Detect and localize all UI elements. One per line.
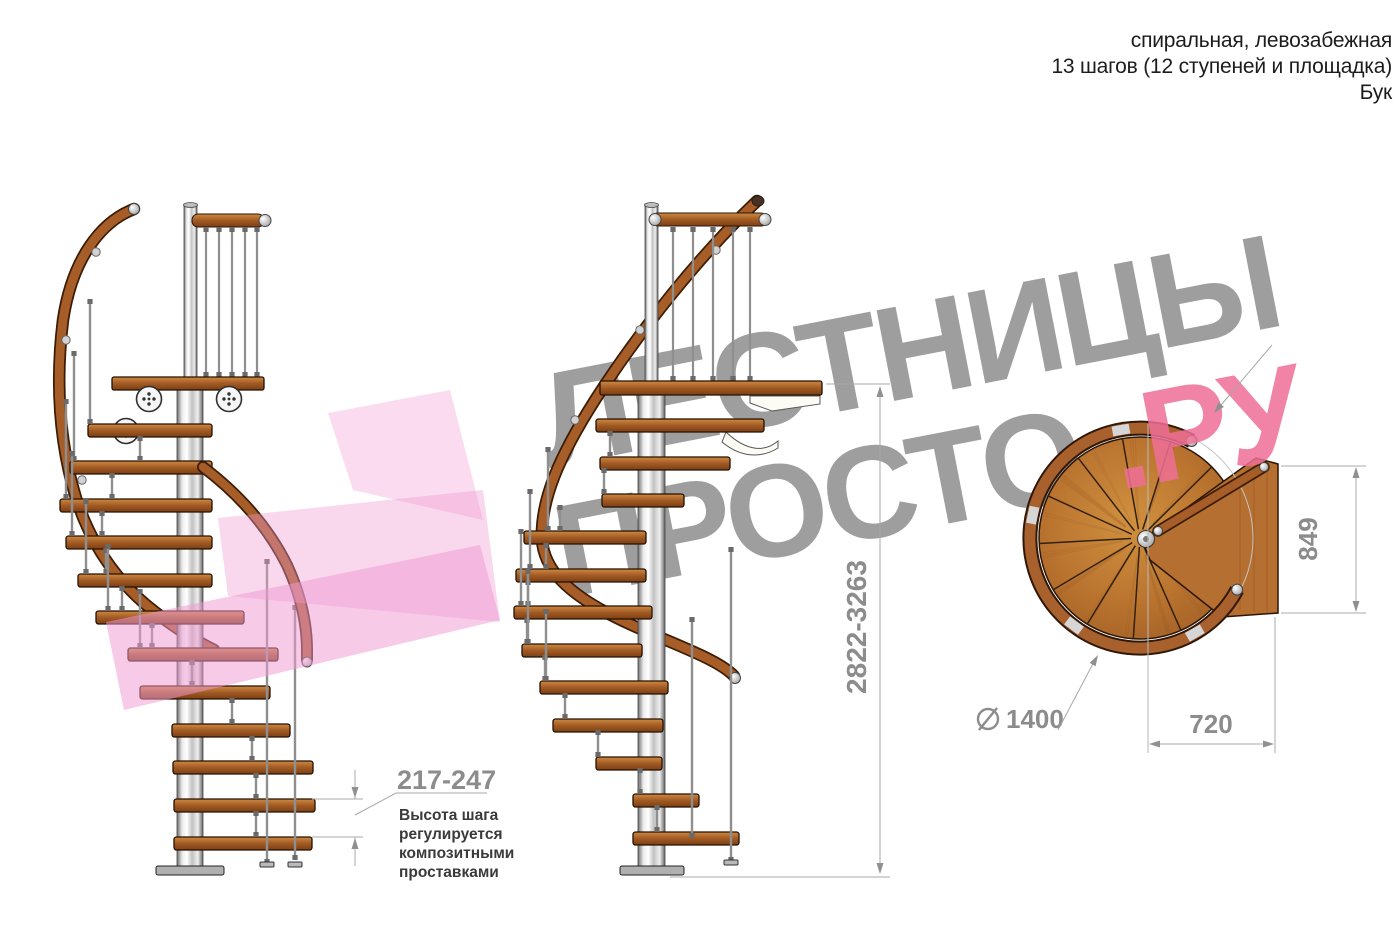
baluster-joint: [670, 376, 675, 381]
arrowhead-up: [1353, 467, 1360, 478]
step: [66, 536, 212, 549]
baluster-joint: [83, 569, 88, 574]
baluster-joint: [99, 511, 104, 516]
rail-end-ball: [649, 214, 661, 226]
step-note-line: регулируется: [399, 826, 502, 843]
baluster-joint: [203, 372, 208, 377]
baluster-joint: [595, 730, 600, 735]
baluster-joint: [607, 431, 612, 436]
baluster-joint: [71, 351, 76, 356]
arrowhead-down: [352, 787, 359, 798]
title-type: спиральная, левозабежная: [1131, 29, 1392, 52]
baluster-joint: [69, 451, 74, 456]
pole-top-cap: [184, 203, 198, 208]
baluster-joint: [249, 756, 254, 761]
total-height-dimension: 2822-3263: [841, 560, 872, 694]
platform-balusters: [203, 227, 259, 377]
handrail-end-cap: [129, 204, 140, 215]
baluster-joint: [105, 544, 110, 549]
baluster-joint: [545, 447, 550, 452]
step: [553, 719, 663, 732]
step: [633, 832, 739, 845]
arrowhead-down: [1353, 601, 1360, 612]
baluster-joint: [747, 376, 752, 381]
baluster-joint: [527, 489, 532, 494]
baluster-joint: [654, 827, 659, 832]
baluster-joint: [525, 569, 530, 574]
disk-hole: [222, 397, 225, 400]
ring-end-cap: [1232, 584, 1243, 595]
baluster-joint: [99, 531, 104, 536]
handrail-joint: [62, 336, 70, 344]
baluster-joint: [83, 499, 88, 504]
step: [60, 499, 212, 512]
baluster-joint: [730, 227, 735, 232]
disk-center: [228, 398, 231, 401]
baluster-joint: [292, 855, 297, 860]
baluster-joint: [543, 609, 548, 614]
step: [172, 724, 290, 737]
baluster-joint: [607, 452, 612, 457]
pole-base-plate: [620, 866, 684, 875]
disk-hole: [227, 392, 230, 395]
baluster-joint: [710, 376, 715, 381]
step: [540, 681, 668, 694]
baluster-joint: [229, 698, 234, 703]
handrail-top-cap: [752, 196, 764, 206]
step: [633, 794, 699, 807]
baluster-joint: [63, 399, 68, 404]
baluster-joint: [119, 606, 124, 611]
handrail-joint: [636, 326, 644, 334]
step: [78, 574, 212, 587]
platform-board: [600, 381, 822, 395]
platform-depth-dimension: 720: [1189, 709, 1232, 739]
baluster-joint: [109, 494, 114, 499]
baluster-joint: [545, 526, 550, 531]
baluster-joint: [203, 227, 208, 232]
baluster-joint: [242, 372, 247, 377]
baluster-joint: [518, 529, 523, 534]
disk-hole: [147, 402, 150, 405]
center-pole-upper: [645, 204, 658, 389]
baluster-joint: [229, 227, 234, 232]
baluster-joint: [63, 494, 68, 499]
staircase-technical-drawing: ЛЕСТНИЦЫ ПРОСТО: [0, 0, 1400, 929]
baluster-foot: [288, 862, 302, 867]
disk-hole: [147, 392, 150, 395]
baluster-joint: [253, 832, 258, 837]
disk-hole: [232, 397, 235, 400]
baluster-joint: [249, 736, 254, 741]
baluster-joint: [242, 227, 247, 232]
baluster-joint: [670, 227, 675, 232]
step: [88, 424, 212, 437]
baluster-joint: [87, 419, 92, 424]
step: [596, 419, 764, 432]
arrowhead: [1090, 655, 1098, 666]
baluster-joint: [216, 227, 221, 232]
step: [522, 644, 642, 657]
center-pole-upper: [184, 204, 197, 404]
handrail-joint: [78, 476, 86, 484]
baluster-joint: [710, 227, 715, 232]
step: [596, 757, 662, 770]
step-note-line: Высота шага: [399, 807, 499, 824]
pink-arrow-watermark: [106, 390, 500, 710]
baluster-joint: [689, 617, 694, 622]
step: [174, 837, 312, 850]
title-block: спиральная, левозабежная 13 шагов (12 ст…: [1051, 29, 1393, 104]
baluster-joint: [87, 299, 92, 304]
step: [173, 761, 313, 774]
step-note-line: композитными: [399, 845, 514, 862]
baluster-joint: [562, 693, 567, 698]
baluster-joint: [543, 676, 548, 681]
baluster-joint: [525, 639, 530, 644]
handrail-joint: [571, 416, 579, 424]
step-note-line: проставками: [399, 864, 499, 881]
baluster-foot: [260, 862, 274, 867]
handrail-cap: [1154, 527, 1163, 536]
arrowhead-right: [1263, 741, 1274, 748]
baluster-joint: [518, 601, 523, 606]
baluster-joint: [254, 372, 259, 377]
arrowhead-left: [1149, 741, 1160, 748]
baluster-joint: [637, 789, 642, 794]
baluster-joint: [637, 768, 642, 773]
baluster-joint: [654, 805, 659, 810]
baluster-joint: [689, 833, 694, 838]
baluster-joint: [595, 752, 600, 757]
baluster-joint: [527, 564, 532, 569]
arrowhead-up: [352, 838, 359, 849]
disk-hole: [142, 397, 145, 400]
baluster-joint: [109, 473, 114, 478]
diameter-dimension: 1400: [1006, 704, 1064, 734]
baluster-joint: [119, 586, 124, 591]
rail-end-ball: [759, 214, 771, 226]
baluster-joint: [137, 589, 142, 594]
diameter-icon: [978, 708, 998, 730]
baluster-joint: [229, 372, 234, 377]
platform-width-dimension: 849: [1293, 517, 1323, 560]
baluster-joint: [543, 564, 548, 569]
leader-line: [1058, 658, 1096, 730]
baluster-joint: [690, 227, 695, 232]
baluster-joint: [137, 436, 142, 441]
rail-end-ball: [259, 215, 271, 227]
baluster-joint: [105, 606, 110, 611]
baluster-joint: [543, 543, 548, 548]
baluster-joint: [253, 811, 258, 816]
platform-top-rail: [192, 214, 264, 227]
baluster-joint: [253, 773, 258, 778]
platform-board: [112, 377, 264, 390]
platform-top-rail: [652, 213, 767, 226]
baluster-joint: [69, 531, 74, 536]
disk-hole: [152, 397, 155, 400]
step-height-dimension: 217-247: [397, 765, 496, 795]
arrowhead-down: [877, 863, 884, 874]
baluster-joint: [730, 376, 735, 381]
leader-line: [355, 793, 396, 815]
drawing-page: ЛЕСТНИЦЫ ПРОСТО: [0, 0, 1400, 929]
baluster-joint: [254, 227, 259, 232]
baluster-joint: [216, 372, 221, 377]
baluster-joint: [747, 227, 752, 232]
disk-hole: [227, 402, 230, 405]
baluster-foot: [724, 860, 738, 865]
pole-base-plate: [156, 866, 224, 875]
step: [70, 461, 212, 474]
title-steps: 13 шагов (12 ступеней и площадка): [1051, 55, 1392, 78]
baluster-joint: [562, 714, 567, 719]
pole-top-cap: [645, 203, 659, 208]
title-material: Бук: [1360, 81, 1393, 104]
baluster-joint: [137, 456, 142, 461]
disk-center: [148, 398, 151, 401]
baluster-joint: [253, 794, 258, 799]
baluster-joint: [690, 376, 695, 381]
handrail-joint: [92, 248, 100, 256]
baluster-joint: [229, 719, 234, 724]
